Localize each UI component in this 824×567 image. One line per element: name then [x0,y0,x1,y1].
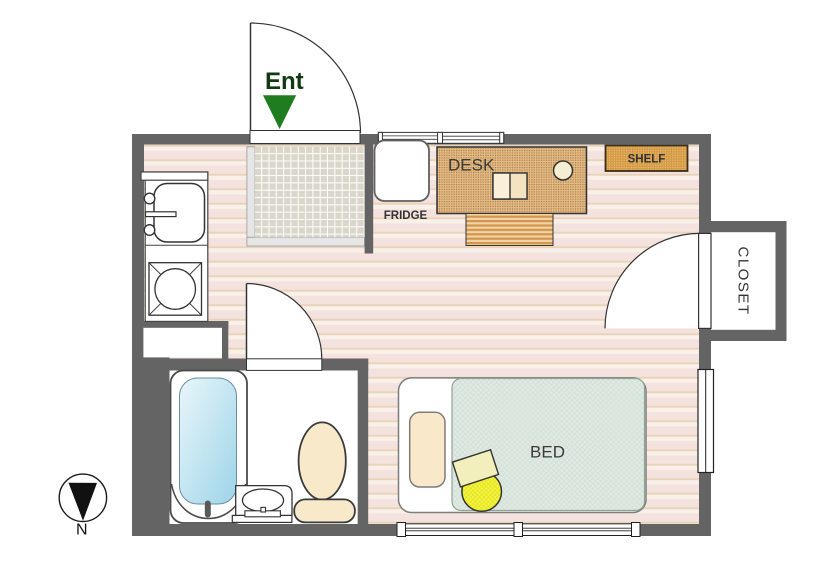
svg-text:N: N [76,522,88,539]
svg-text:SHELF: SHELF [628,154,666,166]
svg-text:Ent: Ent [265,68,304,95]
svg-text:CLOSET: CLOSET [735,246,752,315]
svg-text:BED: BED [530,443,565,462]
svg-text:FRIDGE: FRIDGE [384,210,428,222]
svg-text:DESK: DESK [448,156,495,175]
